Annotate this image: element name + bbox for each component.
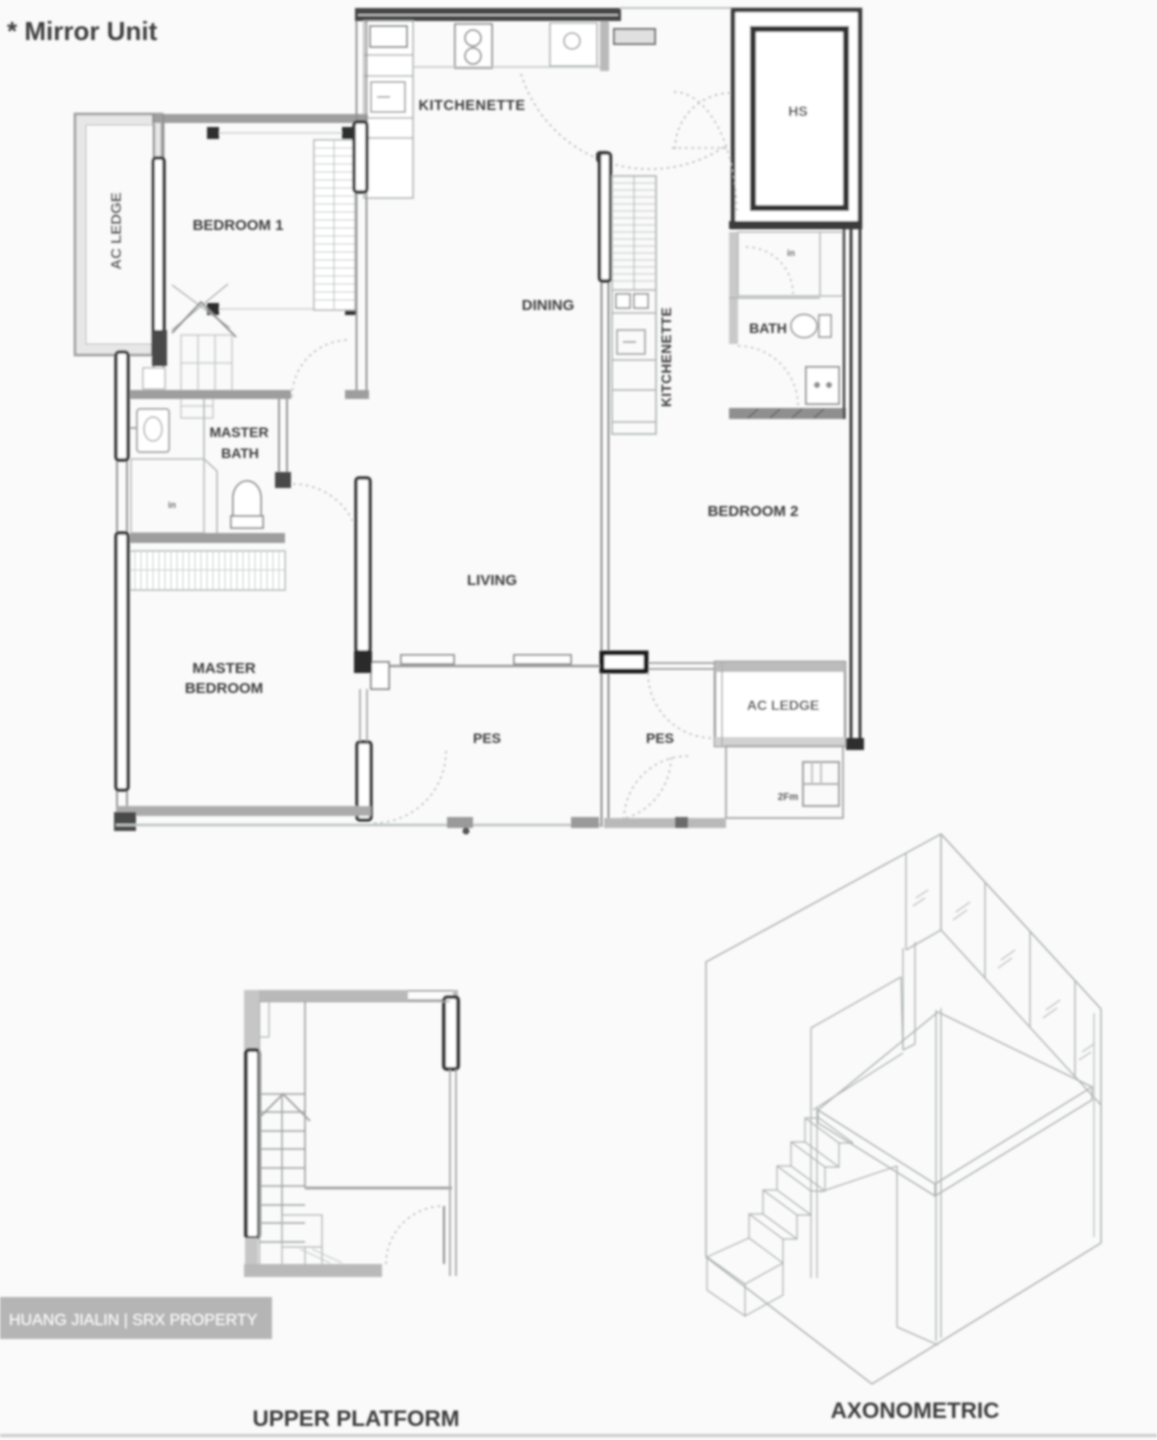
svg-text:UPPER PLATFORM: UPPER PLATFORM (252, 1406, 459, 1431)
svg-text:HS: HS (788, 103, 807, 119)
svg-text:AXONOMETRIC: AXONOMETRIC (831, 1398, 1000, 1423)
svg-text:BEDROOM 2: BEDROOM 2 (708, 503, 799, 520)
svg-text:MASTER: MASTER (192, 660, 256, 677)
svg-text:LIVING: LIVING (467, 572, 517, 589)
svg-text:BEDROOM 1: BEDROOM 1 (193, 217, 284, 234)
svg-text:2Fm: 2Fm (778, 792, 799, 803)
svg-text:in: in (168, 500, 176, 510)
svg-text:KITCHENETTE: KITCHENETTE (419, 98, 526, 114)
svg-text:DINING: DINING (522, 297, 575, 314)
svg-text:* Mirror Unit: * Mirror Unit (7, 16, 158, 46)
svg-text:PES: PES (473, 730, 501, 746)
svg-text:AC LEDGE: AC LEDGE (747, 697, 819, 713)
svg-text:BEDROOM: BEDROOM (185, 680, 263, 697)
svg-text:BATH: BATH (221, 445, 259, 461)
svg-text:in: in (787, 248, 795, 258)
svg-text:BATH: BATH (749, 320, 787, 336)
svg-text:HUANG JIALIN | SRX PROPERTY: HUANG JIALIN | SRX PROPERTY (9, 1312, 258, 1329)
svg-text:PES: PES (646, 730, 674, 746)
svg-text:KITCHENETTE: KITCHENETTE (659, 307, 674, 407)
svg-text:MASTER: MASTER (209, 424, 268, 440)
svg-text:AC LEDGE: AC LEDGE (108, 192, 125, 270)
